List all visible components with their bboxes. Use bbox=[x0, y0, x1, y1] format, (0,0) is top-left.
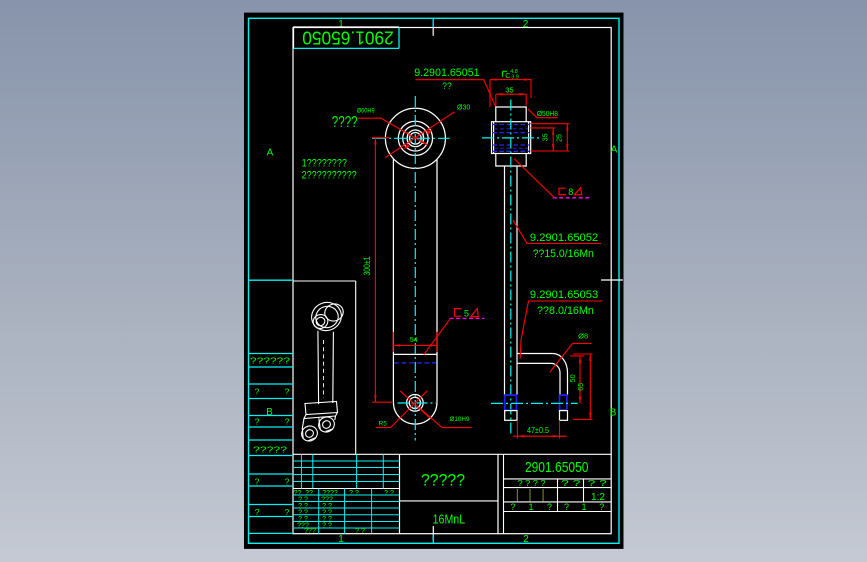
svg-text:R5: R5 bbox=[379, 420, 388, 427]
svg-text:?????: ????? bbox=[253, 444, 287, 454]
svg-text:A: A bbox=[611, 145, 618, 156]
svg-text:?: ? bbox=[255, 477, 260, 487]
svg-text:? ?: ? ? bbox=[561, 479, 581, 488]
svg-text:? ?: ? ? bbox=[384, 490, 394, 497]
svg-text:65: 65 bbox=[578, 383, 585, 391]
svg-text:B: B bbox=[610, 408, 617, 419]
svg-text:9.2901.65052: 9.2901.65052 bbox=[530, 232, 598, 244]
svg-text:?????: ????? bbox=[421, 471, 465, 490]
svg-text:B: B bbox=[266, 407, 273, 418]
svg-text:????: ???? bbox=[332, 114, 358, 131]
svg-text:Ø8: Ø8 bbox=[578, 333, 588, 340]
svg-text:?: ? bbox=[255, 507, 260, 517]
svg-text:??8.0/16Mn: ??8.0/16Mn bbox=[537, 305, 594, 317]
svg-text:35: 35 bbox=[543, 133, 550, 141]
svg-text:9.2901.65053: 9.2901.65053 bbox=[530, 289, 598, 301]
svg-text:?: ? bbox=[285, 417, 290, 427]
svg-text:Ø60H9: Ø60H9 bbox=[357, 108, 375, 115]
svg-text:Ø50H8: Ø50H8 bbox=[537, 111, 558, 118]
svg-text:1: 1 bbox=[581, 502, 586, 512]
svg-text:?: ? bbox=[285, 507, 290, 517]
svg-text:3.9: 3.9 bbox=[511, 75, 519, 81]
svg-text:5: 5 bbox=[464, 308, 469, 318]
svg-text:9.2901.65051: 9.2901.65051 bbox=[414, 67, 479, 79]
svg-text:?: ? bbox=[599, 502, 604, 512]
svg-text:??15.0/16Mn: ??15.0/16Mn bbox=[533, 248, 594, 260]
svg-text:16MnL: 16MnL bbox=[433, 513, 466, 527]
svg-text:8: 8 bbox=[568, 187, 573, 197]
svg-text:? ?: ? ? bbox=[322, 523, 332, 530]
svg-text:??: ?? bbox=[442, 81, 451, 91]
svg-text:? ?: ? ? bbox=[355, 528, 365, 535]
svg-text:1: 1 bbox=[338, 534, 344, 545]
svg-text:Ø10H9: Ø10H9 bbox=[450, 416, 470, 423]
svg-text:A: A bbox=[267, 148, 274, 159]
svg-text:??????: ?????? bbox=[250, 356, 290, 366]
svg-text:300±1: 300±1 bbox=[362, 257, 372, 276]
svg-text:2: 2 bbox=[523, 534, 529, 545]
svg-text:2901.65050: 2901.65050 bbox=[525, 459, 589, 476]
svg-text:35: 35 bbox=[505, 85, 513, 94]
svg-text:25: 25 bbox=[557, 134, 564, 142]
svg-text:50: 50 bbox=[570, 374, 577, 382]
svg-text:?: ? bbox=[510, 502, 515, 512]
svg-text:?: ? bbox=[285, 477, 290, 487]
svg-text:? ? ? ?: ? ? ? ? bbox=[518, 479, 547, 488]
svg-text:2901.65050: 2901.65050 bbox=[302, 27, 394, 47]
svg-text:1: 1 bbox=[528, 502, 533, 512]
svg-text:?: ? bbox=[255, 387, 260, 397]
svg-text:? ?: ? ? bbox=[588, 479, 608, 488]
svg-text:Ø30: Ø30 bbox=[457, 105, 470, 112]
svg-text:1????????: 1???????? bbox=[302, 158, 347, 170]
svg-text:2??????????: 2?????????? bbox=[302, 169, 357, 181]
svg-text:54: 54 bbox=[410, 337, 418, 344]
svg-text:?: ? bbox=[255, 417, 260, 427]
svg-text:?: ? bbox=[547, 502, 552, 512]
svg-text:?: ? bbox=[564, 502, 569, 512]
svg-text:2: 2 bbox=[523, 19, 529, 30]
svg-text:???: ??? bbox=[304, 528, 316, 535]
svg-text:? ?: ? ? bbox=[349, 490, 359, 497]
svg-text:?: ? bbox=[285, 387, 290, 397]
svg-text:47±0.5: 47±0.5 bbox=[527, 426, 549, 435]
